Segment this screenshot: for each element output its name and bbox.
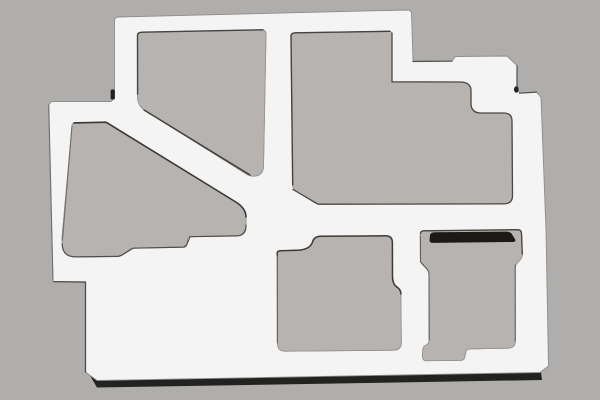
photo-frame xyxy=(0,0,600,400)
cutout-bottom-middle xyxy=(277,236,401,351)
photo-canvas xyxy=(0,0,600,400)
corner-notch xyxy=(111,90,115,100)
edge-notch xyxy=(514,86,519,92)
cutout-bottom-right xyxy=(420,230,522,361)
slot-shadow-bar xyxy=(430,232,515,242)
